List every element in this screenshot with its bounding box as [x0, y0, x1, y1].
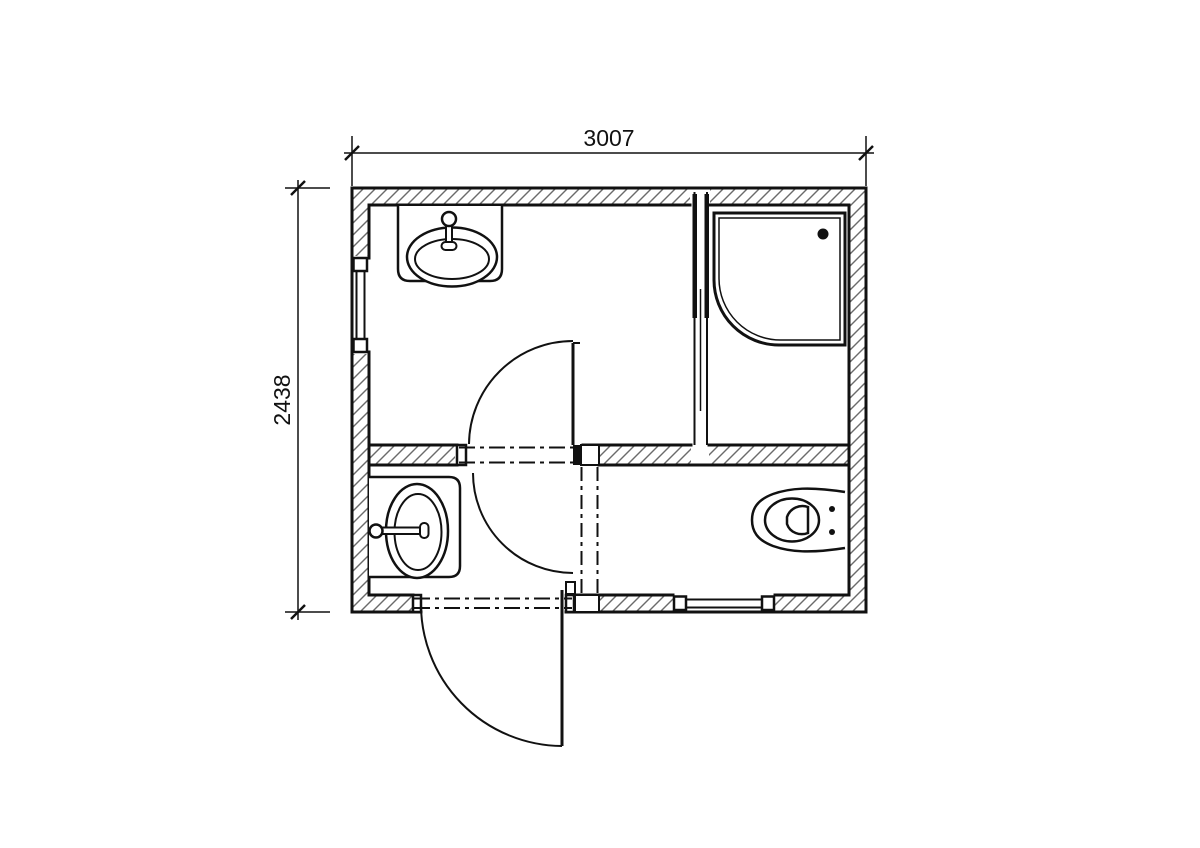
interior-door-swing-arc-down [473, 473, 573, 573]
height-dimension-label: 2438 [269, 374, 295, 425]
shower-partition-panel [705, 194, 710, 318]
room-divider-pocket-top [581, 445, 599, 465]
room-divider [575, 445, 599, 612]
shower-tray [714, 213, 845, 345]
toilet-bowl-water [787, 506, 808, 534]
exterior-door-swing-arc [421, 601, 562, 746]
floor-plan-page: 3007 2438 [0, 0, 1200, 848]
interior-door-jamb-right [573, 445, 581, 465]
toilet [752, 489, 845, 552]
room-divider-pocket-bottom [575, 595, 599, 612]
dimension-left: 2438 [269, 180, 330, 620]
shower-drain-icon [818, 229, 829, 240]
shower-partition-panel [693, 194, 698, 318]
interior-door-swing-arc-up [469, 341, 573, 444]
shower-partition [693, 192, 710, 445]
washbasin-bottom [369, 477, 460, 578]
interior-wall-hatch [369, 445, 849, 465]
washbasin-top [398, 206, 502, 287]
window-bottom-frame-right [762, 597, 774, 611]
window-left-frame-bottom [354, 339, 368, 352]
window-bottom-frame-left [674, 597, 686, 611]
width-dimension-label: 3007 [583, 125, 634, 151]
exterior-door-frame-post [566, 582, 575, 594]
toilet-hinge-dot [829, 506, 835, 512]
dimension-top: 3007 [344, 125, 874, 186]
floor-plan: 3007 2438 [0, 0, 1200, 848]
room-divider-centerlines [582, 467, 598, 593]
toilet-hinge-dot [829, 529, 835, 535]
window-left-frame-top [354, 258, 368, 271]
